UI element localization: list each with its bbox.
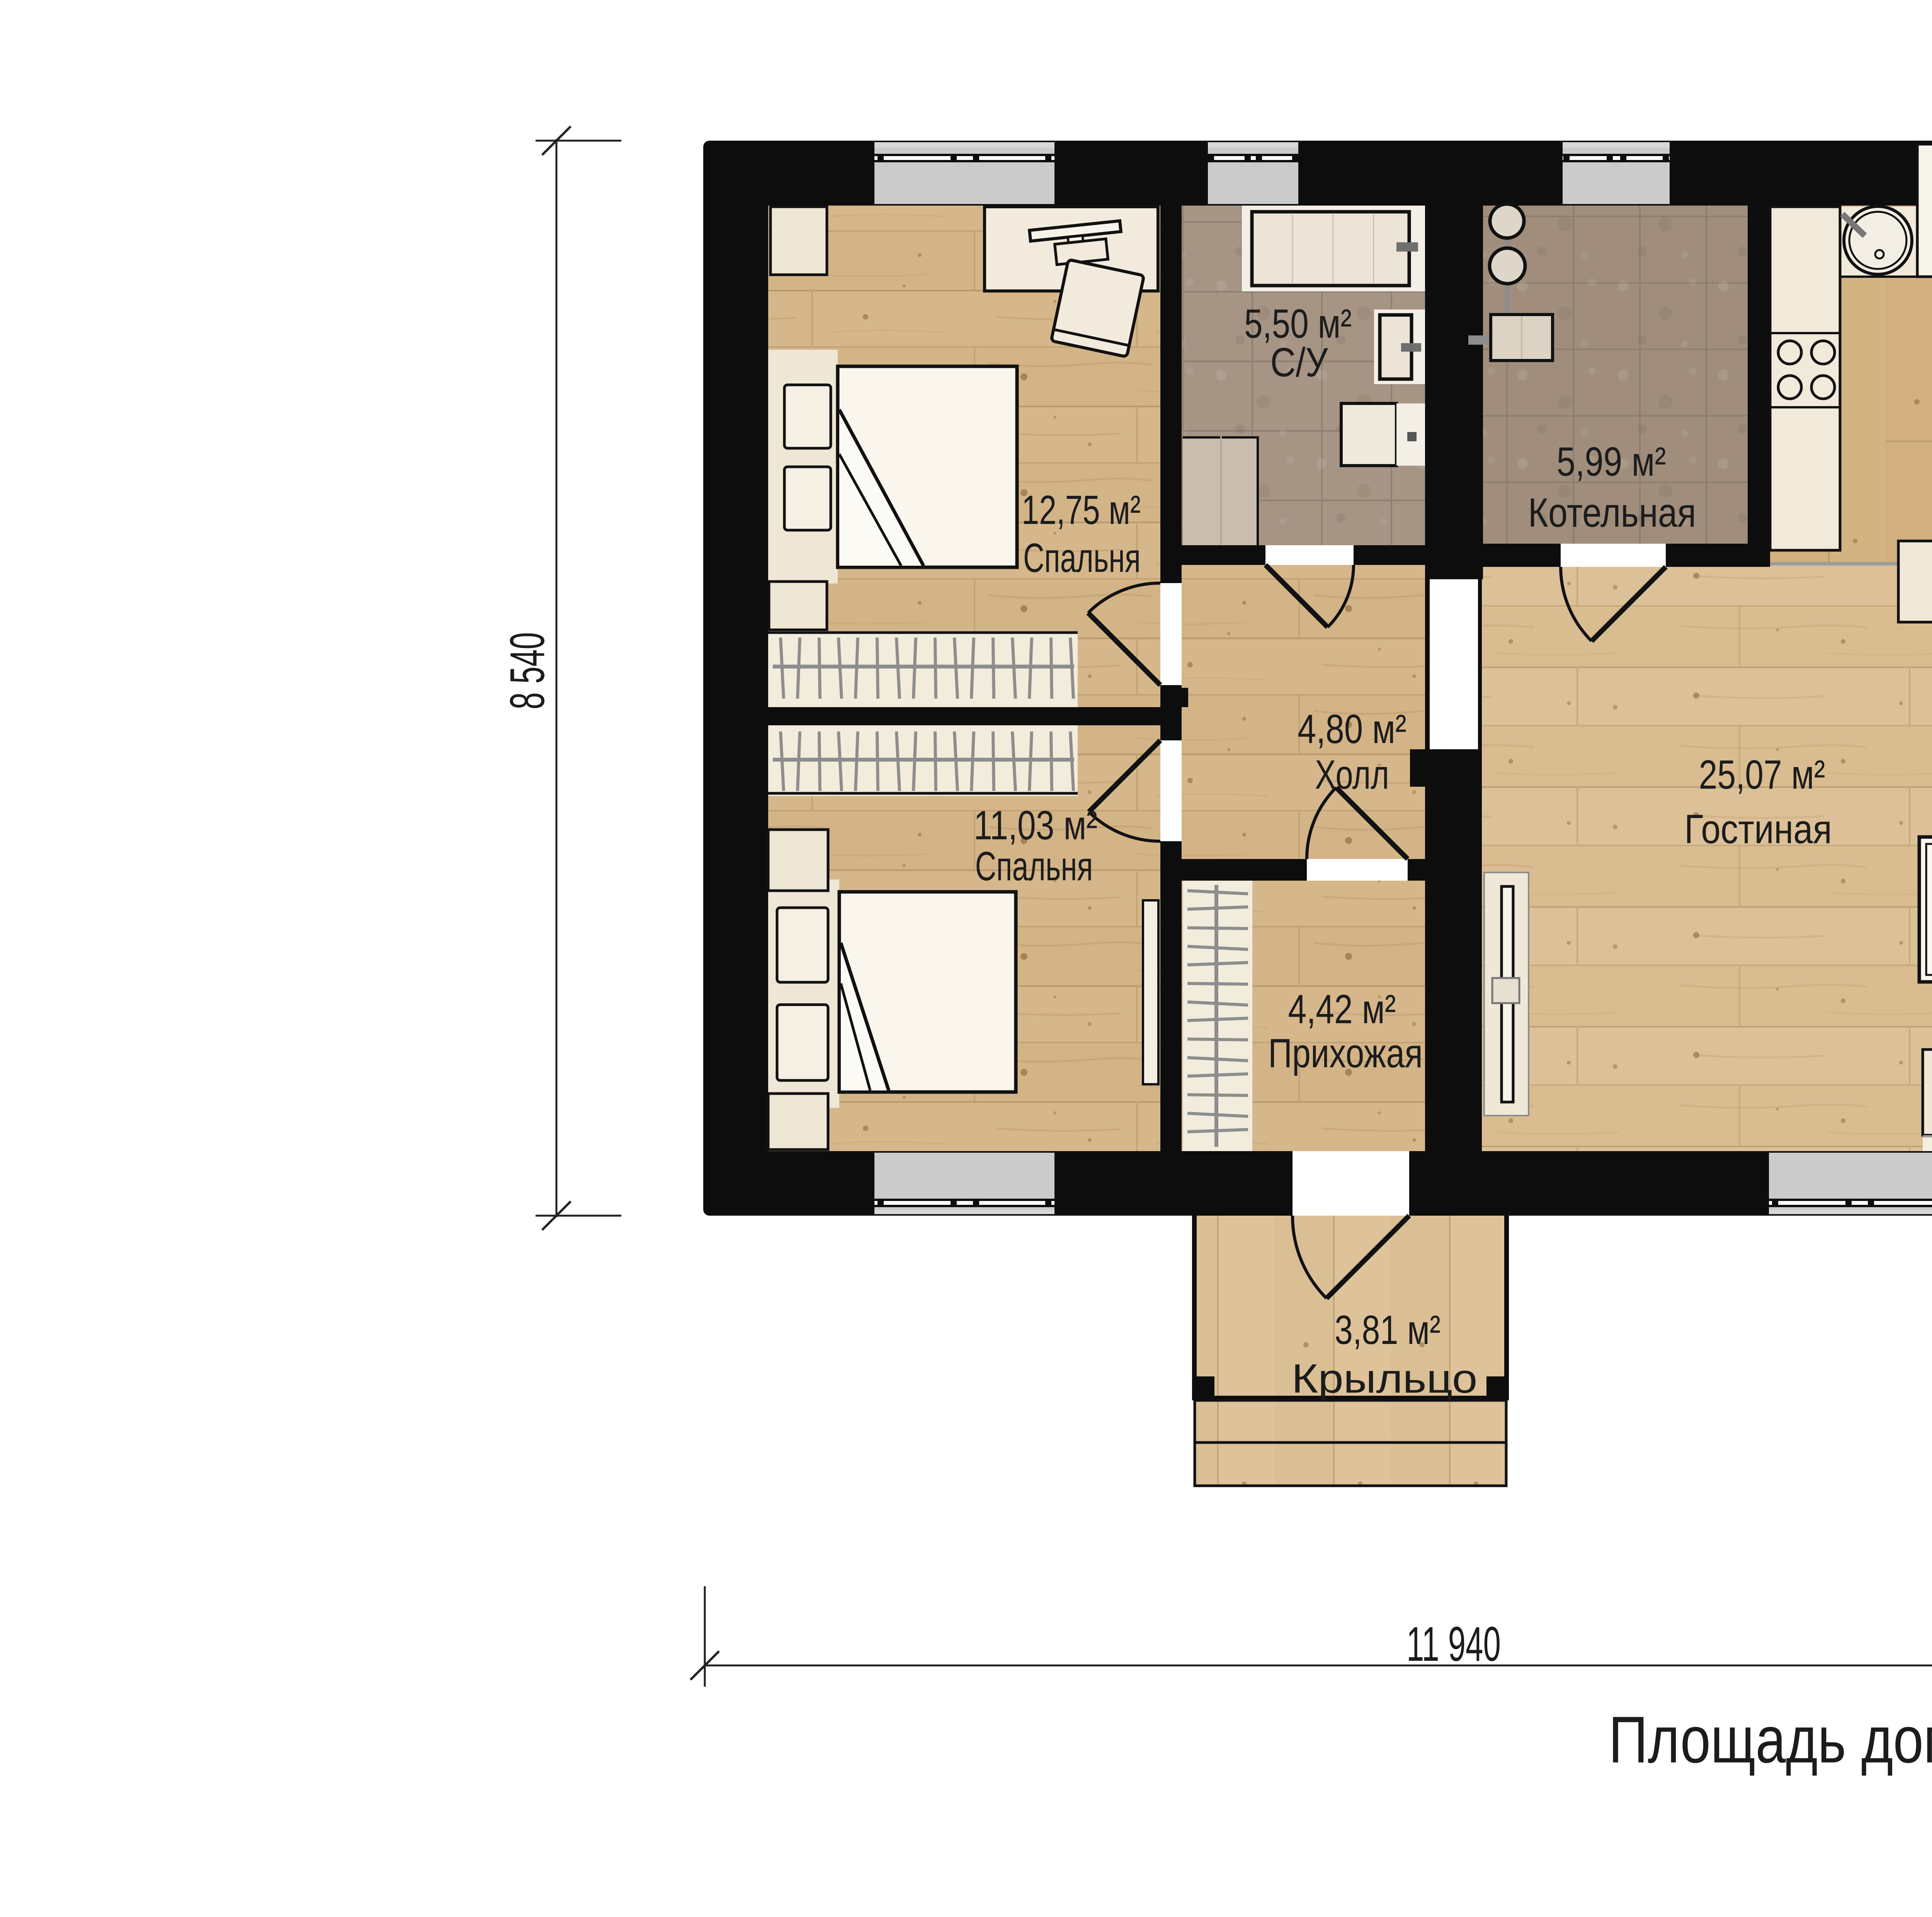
svg-text:Площадь дома 81,98 м2: Площадь дома 81,98 м2 — [1609, 1703, 1932, 1777]
svg-text:Котельная: Котельная — [1528, 490, 1696, 536]
svg-text:25,07 м²: 25,07 м² — [1699, 752, 1825, 798]
svg-text:12,75 м²: 12,75 м² — [1022, 487, 1141, 533]
svg-text:4,80 м²: 4,80 м² — [1298, 706, 1406, 752]
svg-text:Прихожая: Прихожая — [1268, 1031, 1423, 1076]
svg-text:8 540: 8 540 — [500, 632, 554, 709]
svg-text:С/У: С/У — [1270, 340, 1328, 385]
svg-text:Холл: Холл — [1315, 752, 1389, 798]
svg-text:11 940: 11 940 — [1406, 1617, 1501, 1671]
svg-text:5,99 м²: 5,99 м² — [1557, 439, 1666, 485]
svg-text:11,03 м²: 11,03 м² — [974, 803, 1097, 848]
svg-text:3,81 м²: 3,81 м² — [1335, 1307, 1440, 1353]
svg-text:Спальня: Спальня — [1023, 535, 1141, 581]
svg-text:Спальня: Спальня — [975, 844, 1093, 889]
svg-text:Крыльцо: Крыльцо — [1292, 1356, 1478, 1402]
svg-text:4,42 м²: 4,42 м² — [1288, 987, 1396, 1032]
svg-text:Гостиная: Гостиная — [1684, 806, 1832, 852]
